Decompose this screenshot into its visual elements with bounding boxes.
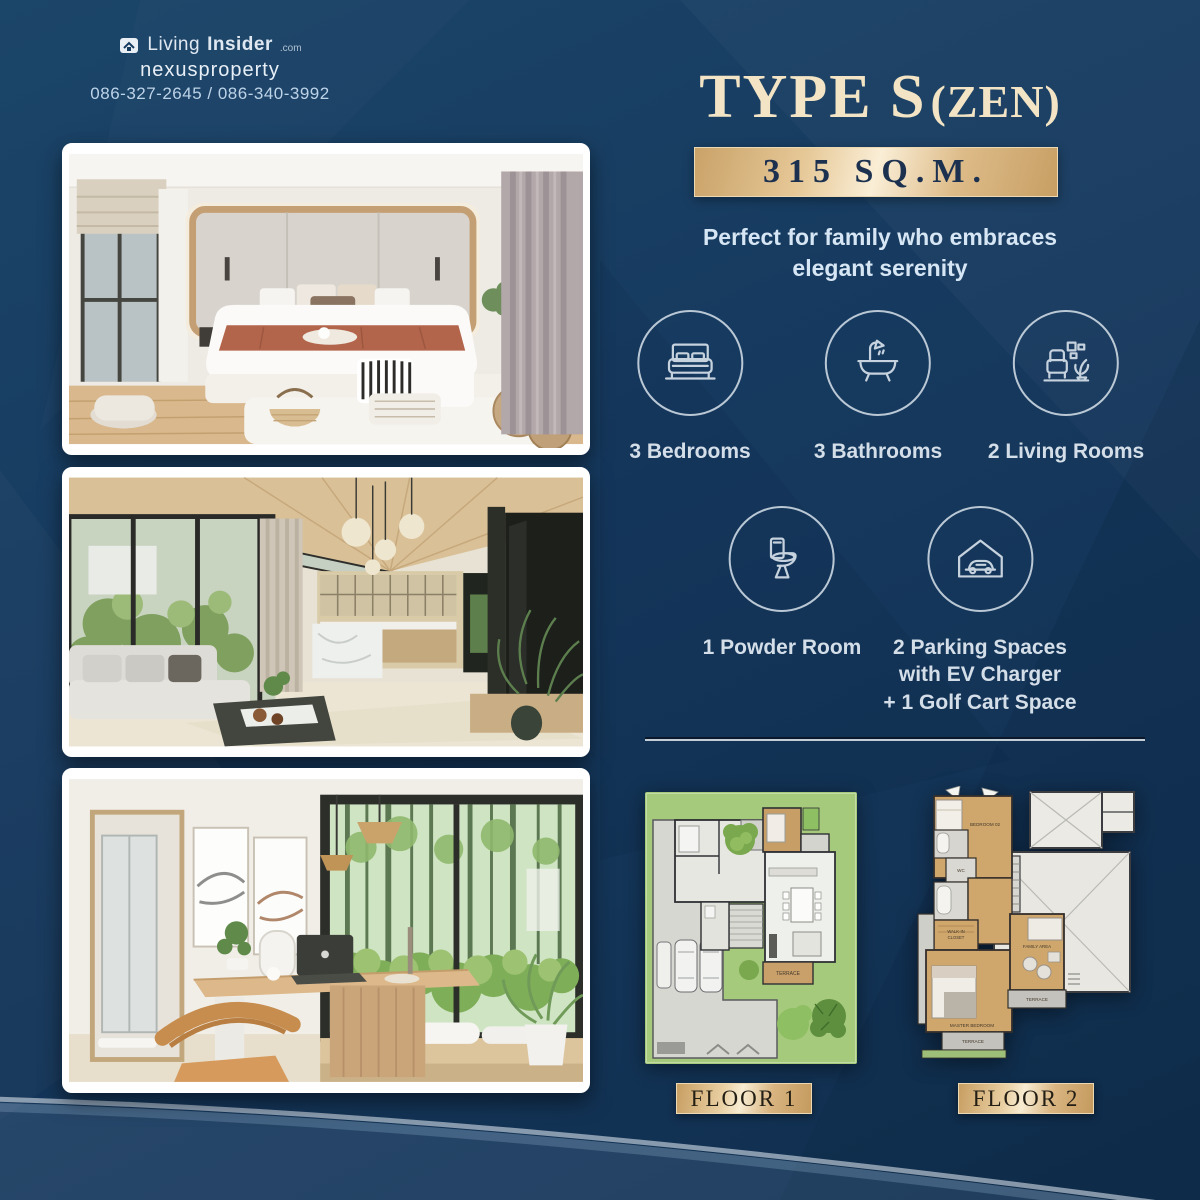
feature-label-parking: 2 Parking Spaces with EV Charger + 1 Gol… xyxy=(883,634,1076,716)
bathtub-icon-circle xyxy=(825,310,931,416)
feature-label-powder-room: 1 Powder Room xyxy=(703,634,862,661)
bed-icon-circle xyxy=(637,310,743,416)
page-title: TYPE S (ZEN) xyxy=(610,62,1150,133)
feature-bedrooms: 3 Bedrooms xyxy=(629,310,750,465)
photo-living-room xyxy=(62,467,590,757)
fp2-walkin-label1: WALK-IN xyxy=(947,929,964,934)
living-insider-cube-icon xyxy=(118,34,140,56)
tagline-line1: Perfect for family who embraces xyxy=(610,222,1150,253)
floor-plan-2: BEDROOM 02 WC WALK-IN CLOSET MASTER BEDR… xyxy=(882,786,1140,1073)
fp2-bedroom2-label: BEDROOM 02 xyxy=(970,822,1001,827)
parking-line2: with EV Charger xyxy=(883,661,1076,688)
feature-bathrooms: 3 Bathrooms xyxy=(814,310,942,465)
phone-numbers: 086-327-2645 / 086-340-3992 xyxy=(50,84,370,104)
section-divider xyxy=(645,739,1145,741)
floor-plan-1: TERRACE xyxy=(645,792,857,1069)
fp1-terrace-label: TERRACE xyxy=(776,971,801,977)
photo-bedroom xyxy=(62,143,590,455)
fp2-wc-label: WC xyxy=(957,868,965,873)
feature-label-living-rooms: 2 Living Rooms xyxy=(988,438,1144,465)
fp2-terrace-rear-label: TERRACE xyxy=(1026,997,1048,1002)
garage-icon xyxy=(949,528,1011,590)
fp2-family-label: FAMILY AREA xyxy=(1023,944,1051,949)
sofa-icon-circle xyxy=(1013,310,1119,416)
toilet-icon xyxy=(751,528,813,590)
brand-prefix: Living xyxy=(147,34,200,56)
property-flyer: LivingInsider.com nexusproperty 086-327-… xyxy=(0,0,1200,1200)
toilet-icon-circle xyxy=(729,506,835,612)
floor1-badge: FLOOR 1 xyxy=(676,1083,812,1114)
parking-line3: + 1 Golf Cart Space xyxy=(883,689,1076,716)
fp2-master-label: MASTER BEDROOM xyxy=(950,1023,994,1028)
parking-line1: 2 Parking Spaces xyxy=(883,634,1076,661)
title-main: TYPE S xyxy=(699,63,926,131)
tagline: Perfect for family who embraces elegant … xyxy=(610,222,1150,284)
feature-parking: 2 Parking Spaces with EV Charger + 1 Gol… xyxy=(883,506,1076,716)
brand-tld: .com xyxy=(280,43,302,54)
agency-name: nexusproperty xyxy=(50,59,370,82)
area-badge: 315 SQ.M. xyxy=(694,147,1058,197)
floor2-badge: FLOOR 2 xyxy=(958,1083,1094,1114)
fp2-walkin-label2: CLOSET xyxy=(948,935,965,940)
feature-powder-room: 1 Powder Room xyxy=(703,506,862,661)
sofa-icon xyxy=(1035,332,1097,394)
feature-label-bedrooms: 3 Bedrooms xyxy=(629,438,750,465)
photo-office xyxy=(62,768,590,1093)
feature-living-rooms: 2 Living Rooms xyxy=(988,310,1144,465)
brand-suffix: Insider xyxy=(207,34,273,56)
floor-plan-1-drawing: TERRACE xyxy=(645,792,857,1064)
garage-icon-circle xyxy=(927,506,1033,612)
bedroom-photo-illustration xyxy=(69,150,583,448)
floor-plan-2-drawing: BEDROOM 02 WC WALK-IN CLOSET MASTER BEDR… xyxy=(882,786,1140,1068)
office-photo-illustration xyxy=(69,775,583,1086)
title-sub: (ZEN) xyxy=(931,76,1061,127)
header: LivingInsider.com nexusproperty 086-327-… xyxy=(50,34,370,104)
feature-label-bathrooms: 3 Bathrooms xyxy=(814,438,942,465)
bed-icon xyxy=(659,332,721,394)
living-room-photo-illustration xyxy=(69,474,583,750)
bathtub-icon xyxy=(847,332,909,394)
brand-logo: LivingInsider.com xyxy=(50,34,370,56)
tagline-line2: elegant serenity xyxy=(610,253,1150,284)
fp2-terrace-front-label: TERRACE xyxy=(962,1039,984,1044)
